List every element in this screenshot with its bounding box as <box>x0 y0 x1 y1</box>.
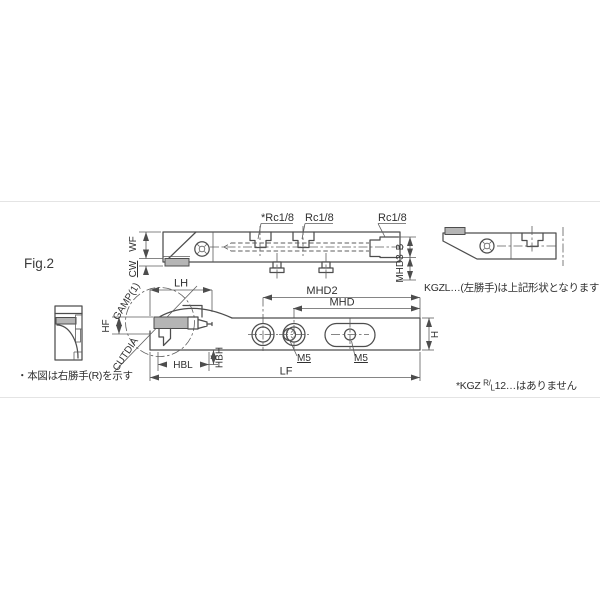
drawing-svg: Fig.2 <box>0 0 600 600</box>
coolant-port-label-1: *Rc1/8 <box>261 212 294 224</box>
dim-label-h: H <box>430 331 441 338</box>
front-view-right-hand: LH HF GAMP(1) CUTDIA MHD2 MHD <box>101 278 441 382</box>
end-view <box>55 306 82 360</box>
top-view-right-hand: *Rc1/8 Rc1/8 Rc1/8 WF CW B MHD3 <box>128 212 416 283</box>
dim-label-hbl: HBL <box>173 360 193 371</box>
insert-top-view <box>165 259 189 267</box>
kgzl-left-hand-view <box>443 226 563 266</box>
m5-label-left: M5 <box>297 353 311 364</box>
page-rules <box>0 202 600 398</box>
mount-hole-left <box>248 298 278 352</box>
hand-note: ・本図は右勝手(R)を示す <box>17 369 133 382</box>
dim-label-hf: HF <box>101 319 112 332</box>
dim-label-hbh: HBH <box>215 347 226 368</box>
clamp-screw-kgzl-icon <box>480 239 494 253</box>
dim-label-b: B <box>395 243 406 250</box>
mount-slot <box>325 319 375 351</box>
kgzl-note: KGZL…(左勝手)は上記形状となります <box>424 281 599 294</box>
insert-front-view <box>154 317 188 329</box>
dim-label-mhd2: MHD2 <box>306 285 337 297</box>
dim-label-cutdia: CUTDIA <box>111 336 141 373</box>
figure-label: Fig.2 <box>24 256 54 271</box>
clamp-screw-icon <box>195 242 209 256</box>
mount-hole-middle <box>279 309 309 352</box>
dim-label-lf: LF <box>280 366 293 378</box>
dim-label-mhd: MHD <box>329 297 354 309</box>
coolant-port-label-2: Rc1/8 <box>305 212 334 224</box>
dim-label-mhd3: MHD3 <box>395 254 406 283</box>
pocket-hook <box>159 329 171 346</box>
kgz12-note: *KGZ R/L12…はありません <box>456 379 577 393</box>
technical-drawing-figure: Fig.2 <box>0 0 600 600</box>
dim-label-wf: WF <box>128 236 139 252</box>
dim-label-gamp: GAMP(1) <box>111 281 142 322</box>
coolant-port-label-3: Rc1/8 <box>378 212 407 224</box>
dim-label-cw: CW <box>128 260 139 277</box>
m5-label-right: M5 <box>354 353 368 364</box>
insert-kgzl-view <box>445 228 465 235</box>
dim-label-lh: LH <box>174 278 188 290</box>
